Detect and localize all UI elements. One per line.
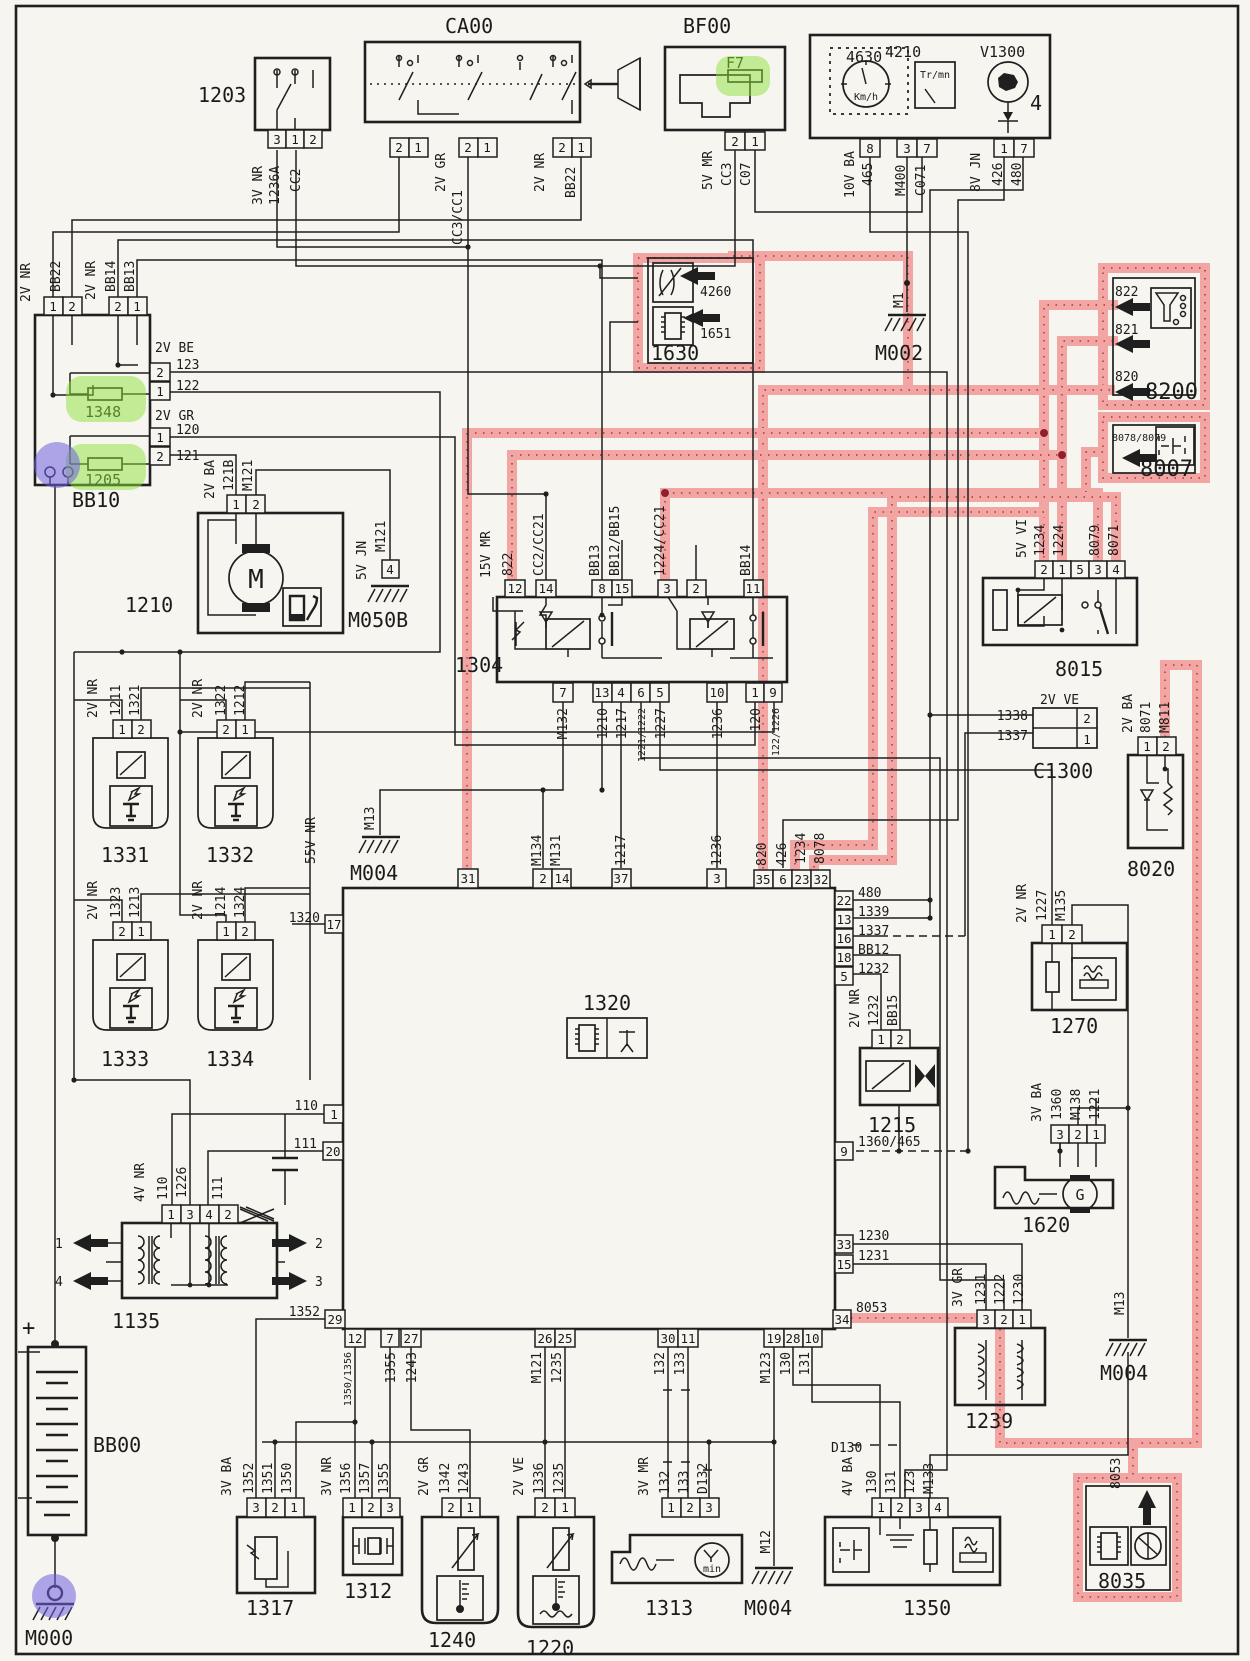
pin: 5 [840, 969, 848, 984]
wire-label: 1350 [280, 1463, 295, 1494]
arrow-label: 822 [1115, 285, 1138, 300]
pin: 2 [156, 449, 164, 464]
wire-label: 1214 [214, 887, 229, 918]
wire-label: 1337 [858, 924, 889, 939]
pin: 1 [290, 1500, 298, 1515]
pin: 8 [866, 141, 874, 156]
wire-label: 3V BA [1030, 1083, 1045, 1122]
wire-label: 132 [653, 1352, 668, 1375]
wire-label: 1211 [109, 685, 124, 716]
wire-label: 3V MR [637, 1457, 652, 1496]
wire-label: 1232 [858, 962, 889, 977]
wire-label: 111 [211, 1177, 226, 1200]
component-label: 1317 [246, 1596, 294, 1620]
wire-label: 121B [222, 460, 237, 491]
battery-plus: + [22, 1316, 35, 1341]
wire-label: 132 [658, 1471, 673, 1494]
wire-label: 121 [176, 449, 199, 464]
pin: 4 [205, 1207, 213, 1222]
wire-label: BB22 [49, 261, 64, 292]
pin: 2 [896, 1500, 904, 1515]
component-label: 1313 [645, 1596, 693, 1620]
wire-label: 1352 [289, 1305, 320, 1320]
pin: 23 [794, 872, 809, 887]
ground-wire-label: M1 [892, 292, 907, 308]
pin: 2 [222, 722, 230, 737]
wire-label: 1351 [261, 1463, 276, 1494]
wire-label: 1339 [858, 905, 889, 920]
highlight-m000 [32, 1574, 76, 1618]
pin: 2 [692, 581, 700, 596]
wire-label: 1352 [242, 1463, 257, 1494]
pin: 1 [137, 924, 145, 939]
wire-label: 1342 [438, 1463, 453, 1494]
wire-label: CC2 [289, 169, 304, 192]
pin: 18 [836, 950, 851, 965]
wire-label: 480 [858, 886, 881, 901]
wire-label: 2V VE [1040, 693, 1079, 708]
tachometer-unit: Tr/mn [920, 70, 950, 81]
wire-label: 1360 [1050, 1089, 1065, 1120]
pin: 10 [709, 685, 724, 700]
component-label: 1135 [112, 1309, 160, 1333]
wire-label: 122/1226 [771, 708, 782, 756]
pin: 2 [156, 365, 164, 380]
pin: 34 [834, 1312, 849, 1327]
component-label: BB00 [93, 1433, 141, 1457]
pin: 3 [663, 581, 671, 596]
wire-label: M811 [1158, 702, 1173, 733]
wire-label: 130 [779, 1352, 794, 1375]
wire-label: 120 [176, 423, 199, 438]
pin: 6 [637, 685, 645, 700]
wire-label: BB12 [858, 943, 889, 958]
pin: 2 [1083, 711, 1091, 726]
wire-label: 820 [755, 843, 770, 866]
wire-label: BB12/BB15 [608, 506, 623, 576]
wire-label: 2V NR [86, 679, 101, 718]
pin: 1 [156, 430, 164, 445]
wire-label: 1226 [175, 1167, 190, 1198]
pin: 3 [273, 132, 281, 147]
sheet-number: 4 [1030, 91, 1042, 115]
wire-label: BB22 [564, 167, 579, 198]
component-label: 1350 [903, 1596, 951, 1620]
component-label: 1312 [344, 1579, 392, 1603]
pin: 4 [617, 685, 625, 700]
wire-label: 122 [176, 379, 199, 394]
wire-label: 1236A [268, 166, 283, 205]
terminal-label: 4 [55, 1275, 63, 1290]
wire-label: D130 [831, 1441, 862, 1456]
pin: 13 [594, 685, 609, 700]
pin: 15 [836, 1257, 851, 1272]
terminal-label: 1 [55, 1237, 63, 1252]
pin: 1 [561, 1500, 569, 1515]
wire-label: 465 [861, 163, 876, 186]
wire-label: 2V BA [1121, 694, 1136, 733]
pin: 1 [1048, 927, 1056, 942]
wire-label: 8078 [813, 833, 828, 864]
pin: 2 [686, 1500, 694, 1515]
wire-label: 1321 [128, 685, 143, 716]
wire-label: 5V JN [355, 541, 370, 580]
wire-label: M134 [530, 835, 545, 866]
pin: 1 [877, 1500, 885, 1515]
pin: 1 [577, 140, 585, 155]
component-label: 1239 [965, 1409, 1013, 1433]
wire-label: C071 [914, 165, 929, 196]
wire-label: 8071 [1107, 525, 1122, 556]
component-label: 8015 [1055, 657, 1103, 681]
pin: 2 [1000, 1312, 1008, 1327]
arrow-label: 1651 [700, 327, 731, 342]
tachometer-label: 4210 [885, 43, 921, 61]
pin: 26 [537, 1331, 552, 1346]
pin: 27 [403, 1331, 418, 1346]
wire-label: 5V MR [701, 151, 716, 190]
wire-label: 120 [749, 708, 764, 731]
arrow-label: 821 [1115, 323, 1138, 338]
arrow-label: 8053 [1109, 1458, 1124, 1489]
speedometer-label: 4630 [846, 48, 882, 66]
wire-label: 1230 [858, 1229, 889, 1244]
pin: 2 [137, 722, 145, 737]
pin: 25 [557, 1331, 572, 1346]
wiring-diagram-page: 3 1 2 1203 3V NR 1236A CC2 2 1 2 1 2 1 C… [0, 0, 1250, 1661]
wire-label: 1243 [457, 1463, 472, 1494]
wire-label: M121 [530, 1352, 545, 1383]
wire-label: 1322 [214, 685, 229, 716]
wire-label: 131 [884, 1471, 899, 1494]
component-label: BB10 [72, 488, 120, 512]
wire-label: 8V JN [969, 153, 984, 192]
pin: 9 [769, 685, 777, 700]
wire-label: 1224 [1052, 525, 1067, 556]
wire-label: M123 [759, 1352, 774, 1383]
component-label: 1630 [651, 341, 699, 365]
wire-label: 3V GR [951, 1268, 966, 1307]
wire-label: 2V NR [191, 881, 206, 920]
wire-label: 4V NR [133, 1163, 148, 1202]
pin: 1 [1143, 739, 1151, 754]
pin: 1 [222, 924, 230, 939]
wire-label: 3V NR [251, 166, 266, 205]
component-label: 1215 [868, 1113, 916, 1137]
wire-label: 1213 [128, 887, 143, 918]
wire-label: 1357 [358, 1463, 373, 1494]
ground-wire-label: M13 [1113, 1292, 1128, 1315]
wire-label: 480 [1010, 163, 1025, 186]
wire-label: 2V GR [417, 1457, 432, 1496]
wire-label: 1232 [867, 995, 882, 1026]
pin: 3 [1094, 562, 1102, 577]
wire-label: 55V NR [304, 817, 319, 864]
wire-label: BB13 [123, 261, 138, 292]
pin: 1 [483, 140, 491, 155]
pin: 1 [1058, 562, 1066, 577]
wire-label: M400 [894, 165, 909, 196]
wire-label: 1336 [532, 1463, 547, 1494]
component-label: BF00 [683, 14, 731, 38]
wire-label: 15V MR [479, 531, 494, 578]
wire-label: 1323 [109, 887, 124, 918]
pin: 2 [68, 299, 76, 314]
wire-label: 3V BA [220, 1457, 235, 1496]
wire-label: 1231 [974, 1274, 989, 1305]
pin: 3 [915, 1500, 923, 1515]
wire-label: 1360/465 [858, 1135, 921, 1150]
pin: 3 [982, 1312, 990, 1327]
ground-label: M004 [350, 861, 398, 885]
pin: 1 [667, 1500, 675, 1515]
pin: 7 [1020, 141, 1028, 156]
wire-label: 1338 [997, 709, 1028, 724]
highlight-bb10-terminal [34, 442, 80, 488]
pin: 16 [836, 931, 851, 946]
wire-label: 8071 [1139, 702, 1154, 733]
pin: 2 [309, 132, 317, 147]
pin: 17 [326, 917, 341, 932]
wire-label: 1224/CC21 [653, 506, 668, 576]
pin: 1 [232, 497, 240, 512]
wire-label: 8053 [856, 1301, 887, 1316]
component-label: 1220 [526, 1636, 574, 1660]
pin: 3 [386, 1500, 394, 1515]
pin: 29 [327, 1312, 342, 1327]
pin: 5 [1076, 562, 1084, 577]
pin: 2 [367, 1500, 375, 1515]
component-label: 1620 [1022, 1213, 1070, 1237]
pin: 2 [447, 1500, 455, 1515]
wire-label: 2V GR [155, 409, 194, 424]
pin: 2 [464, 140, 472, 155]
component-label: 8035 [1098, 1569, 1146, 1593]
pin: 1 [241, 722, 249, 737]
pin: 4 [934, 1500, 942, 1515]
highlight-1348 [66, 376, 146, 422]
pin: 7 [923, 141, 931, 156]
pin: 2 [539, 871, 547, 886]
terminal-label: 3 [315, 1275, 323, 1290]
component-label: 8020 [1127, 857, 1175, 881]
wire-label: 822 [501, 553, 516, 576]
pin: 1 [118, 722, 126, 737]
wire-label: 2V VE [512, 1457, 527, 1496]
wire-label: 2V NR [848, 989, 863, 1028]
pin: 1 [466, 1500, 474, 1515]
component-label: 1334 [206, 1047, 254, 1071]
wire-label: 2V NR [1015, 884, 1030, 923]
wire-label: 426 [991, 163, 1006, 186]
component-label: 8007 [1140, 457, 1193, 482]
wire-label: BB14 [739, 545, 754, 576]
pin: 3 [1056, 1127, 1064, 1142]
component-label: 1270 [1050, 1014, 1098, 1038]
wire-label: 1230 [1012, 1274, 1027, 1305]
pin: 19 [766, 1331, 781, 1346]
pin: 2 [896, 1032, 904, 1047]
pin: 37 [613, 871, 628, 886]
sensor-unit: min [703, 1564, 721, 1575]
wire-label: D132 [696, 1463, 711, 1494]
wire-label: BB15 [886, 995, 901, 1026]
component-label: 1331 [101, 843, 149, 867]
pin: 2 [558, 140, 566, 155]
component-label: 8200 [1145, 380, 1198, 405]
component-label: 1333 [101, 1047, 149, 1071]
pin: 2 [252, 497, 260, 512]
wire-label: 130 [865, 1471, 880, 1494]
ground-label: M002 [875, 341, 923, 365]
wire-label: BB13 [588, 545, 603, 576]
pin: 2 [1068, 927, 1076, 942]
wire-label: 123 [176, 358, 199, 373]
ground-wire-label: M13 [363, 807, 378, 830]
wire-label: 1355 [384, 1352, 399, 1383]
pin: 1 [1000, 141, 1008, 156]
wire-label: 1227 [1035, 890, 1050, 921]
component-label: C1300 [1033, 759, 1093, 783]
wire-label: CC3/CC1 [451, 190, 466, 245]
ground-label: M050B [348, 608, 408, 632]
terminal-label: 2 [315, 1237, 323, 1252]
wire-label: CC2/CC21 [532, 513, 547, 576]
pin: 2 [114, 299, 122, 314]
pin: 2 [395, 140, 403, 155]
pin: 3 [903, 141, 911, 156]
wire-label: 2V GR [434, 153, 449, 192]
pin: 11 [745, 581, 760, 596]
wire-label: M138 [1069, 1089, 1084, 1120]
pin: 13 [836, 912, 851, 927]
pin: 1 [348, 1500, 356, 1515]
wire-label: C07 [739, 163, 754, 186]
component-label: 1210 [125, 593, 173, 617]
wire-label: 2V NR [84, 261, 99, 300]
wire-label: 1217 [614, 835, 629, 866]
wire-label: 1222 [993, 1274, 1008, 1305]
pin: 20 [325, 1144, 340, 1159]
ground-label: M000 [25, 1626, 73, 1650]
wire-label: M131 [549, 835, 564, 866]
pin: 1 [751, 685, 759, 700]
component-label: CA00 [445, 14, 493, 38]
wire-label: M121 [241, 460, 256, 491]
pin: 3 [713, 871, 721, 886]
pin: 5 [656, 685, 664, 700]
wire-label: 426 [775, 843, 790, 866]
pin: 2 [241, 924, 249, 939]
wire-label: 8079 [1088, 525, 1103, 556]
wire-label: 1320 [289, 911, 320, 926]
pin: 2 [1162, 739, 1170, 754]
wire-label: 4V BA [841, 1457, 856, 1496]
wire-label: 1217 [615, 708, 630, 739]
pin: 1 [414, 140, 422, 155]
pin: 3 [252, 1500, 260, 1515]
pin: 1 [1018, 1312, 1026, 1327]
ground-label: M004 [1100, 1361, 1148, 1385]
warning-lamp-label: V1300 [980, 43, 1025, 61]
wire-label: 1236 [710, 835, 725, 866]
highlight-f7 [716, 56, 770, 96]
pin: 3 [705, 1500, 713, 1515]
ground-wire-label: M12 [759, 1530, 774, 1553]
wire-label: 1243 [405, 1352, 420, 1383]
wire-label: 1355 [377, 1463, 392, 1494]
pin: 1 [330, 1107, 338, 1122]
pin: 3 [186, 1207, 194, 1222]
wire-label: 1235 [550, 1352, 565, 1383]
pin: 7 [386, 1331, 394, 1346]
wire-label: 1234 [1033, 525, 1048, 556]
wire-label: 1231 [858, 1249, 889, 1264]
pin: 1 [167, 1207, 175, 1222]
wire-label: BB14 [104, 261, 119, 292]
pin: 2 [541, 1500, 549, 1515]
wire-label: 133 [677, 1471, 692, 1494]
wire-label: 1212 [233, 685, 248, 716]
pin: 9 [840, 1144, 848, 1159]
wire-label: M133 [922, 1463, 937, 1494]
wire-label: 2V NR [191, 679, 206, 718]
wire-label: 3V NR [320, 1457, 335, 1496]
pin: 1 [291, 132, 299, 147]
wire-label: 1221/1222 [637, 708, 648, 762]
wire-label: 1236 [711, 708, 726, 739]
pin: 4 [386, 562, 394, 577]
wire-label: 2V NR [19, 263, 34, 302]
wire-label: 2V BA [203, 460, 218, 499]
wire-label: 5V VI [1015, 519, 1030, 558]
pin: 1 [49, 299, 57, 314]
pin: 12 [347, 1331, 362, 1346]
wire-label: M121 [374, 521, 389, 552]
wire-label: 110 [295, 1099, 318, 1114]
wire-label: 2V NR [86, 881, 101, 920]
wire-label: 10V BA [843, 151, 858, 198]
pin: 33 [836, 1237, 851, 1252]
pin: 22 [836, 893, 851, 908]
wire-label: 1221 [1088, 1089, 1103, 1120]
wire-label: 1234 [794, 833, 809, 864]
wire-label: 1350/1356 [343, 1352, 354, 1406]
arrow-label: 820 [1115, 370, 1138, 385]
pin: 2 [118, 924, 126, 939]
wire-label: 133 [673, 1352, 688, 1375]
pin: 1 [1083, 732, 1091, 747]
motor-icon-letter: M [248, 565, 264, 595]
pin: 8 [598, 581, 606, 596]
component-label: 1304 [455, 653, 503, 677]
wire-label: 123 [903, 1471, 918, 1494]
pin: 1 [751, 134, 759, 149]
wire-label: 1227 [654, 708, 669, 739]
pin: 10 [804, 1331, 819, 1346]
wire-label: 2V BE [155, 341, 194, 356]
pin: 14 [554, 871, 569, 886]
pin: 2 [1040, 562, 1048, 577]
ground-label: M004 [744, 1596, 792, 1620]
wire-label: 111 [294, 1137, 317, 1152]
pin: 11 [680, 1331, 695, 1346]
pin: 2 [731, 134, 739, 149]
pin: 12 [507, 581, 522, 596]
wire-label: 2V NR [533, 153, 548, 192]
wiring-diagram-canvas: 3 1 2 1203 3V NR 1236A CC2 2 1 2 1 2 1 C… [0, 0, 1250, 1661]
paper-background [0, 0, 1250, 1661]
